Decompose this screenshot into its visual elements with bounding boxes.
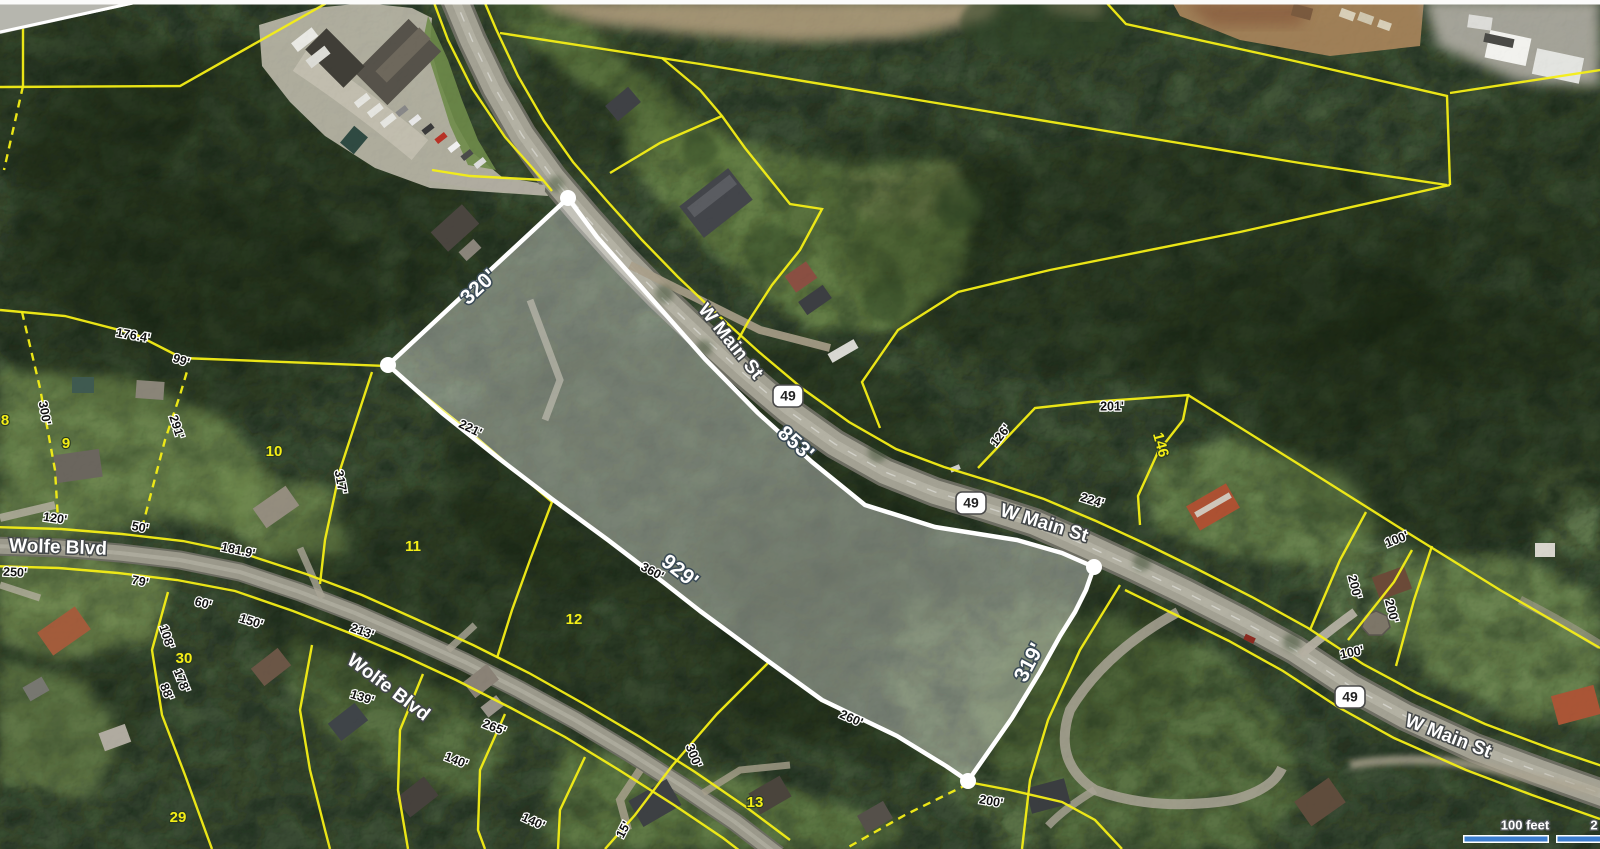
svg-text:9: 9 [62, 435, 70, 452]
svg-text:250': 250' [3, 565, 28, 580]
svg-text:Wolfe Blvd: Wolfe Blvd [9, 535, 108, 559]
svg-text:8: 8 [1, 412, 9, 429]
svg-text:30: 30 [176, 650, 193, 667]
svg-text:49: 49 [963, 495, 979, 511]
svg-text:201': 201' [1100, 399, 1124, 413]
svg-text:50': 50' [131, 519, 150, 536]
svg-text:11: 11 [405, 538, 421, 555]
svg-text:12: 12 [566, 611, 583, 628]
svg-text:2: 2 [1590, 817, 1597, 832]
svg-text:29: 29 [170, 809, 187, 826]
svg-text:10: 10 [266, 443, 283, 460]
svg-text:13: 13 [747, 794, 764, 811]
svg-text:49: 49 [1342, 689, 1358, 705]
svg-text:100 feet: 100 feet [1501, 817, 1550, 832]
svg-text:49: 49 [780, 388, 796, 404]
